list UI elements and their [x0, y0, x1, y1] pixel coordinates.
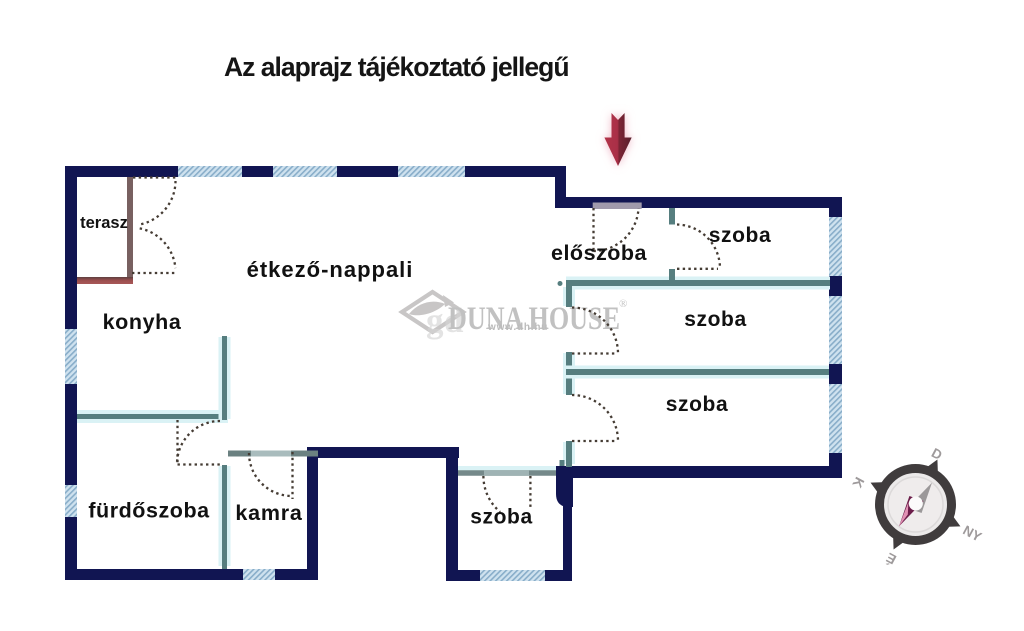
svg-text:®: ® — [619, 298, 627, 310]
svg-text:szoba: szoba — [709, 224, 772, 247]
svg-text:szoba: szoba — [470, 506, 533, 529]
svg-text:konyha: konyha — [103, 310, 182, 334]
svg-text:www.dh.hu: www.dh.hu — [487, 322, 548, 333]
svg-text:szoba: szoba — [684, 308, 747, 331]
svg-text:Az alaprajz tájékoztató jelleg: Az alaprajz tájékoztató jellegű — [224, 52, 569, 82]
svg-text:terasz: terasz — [80, 214, 128, 232]
svg-text:kamra: kamra — [235, 501, 303, 525]
svg-text:fürdőszoba: fürdőszoba — [88, 499, 210, 523]
svg-text:szoba: szoba — [666, 393, 729, 416]
svg-text:étkező-nappali: étkező-nappali — [247, 257, 414, 282]
svg-text:előszoba: előszoba — [551, 241, 648, 265]
